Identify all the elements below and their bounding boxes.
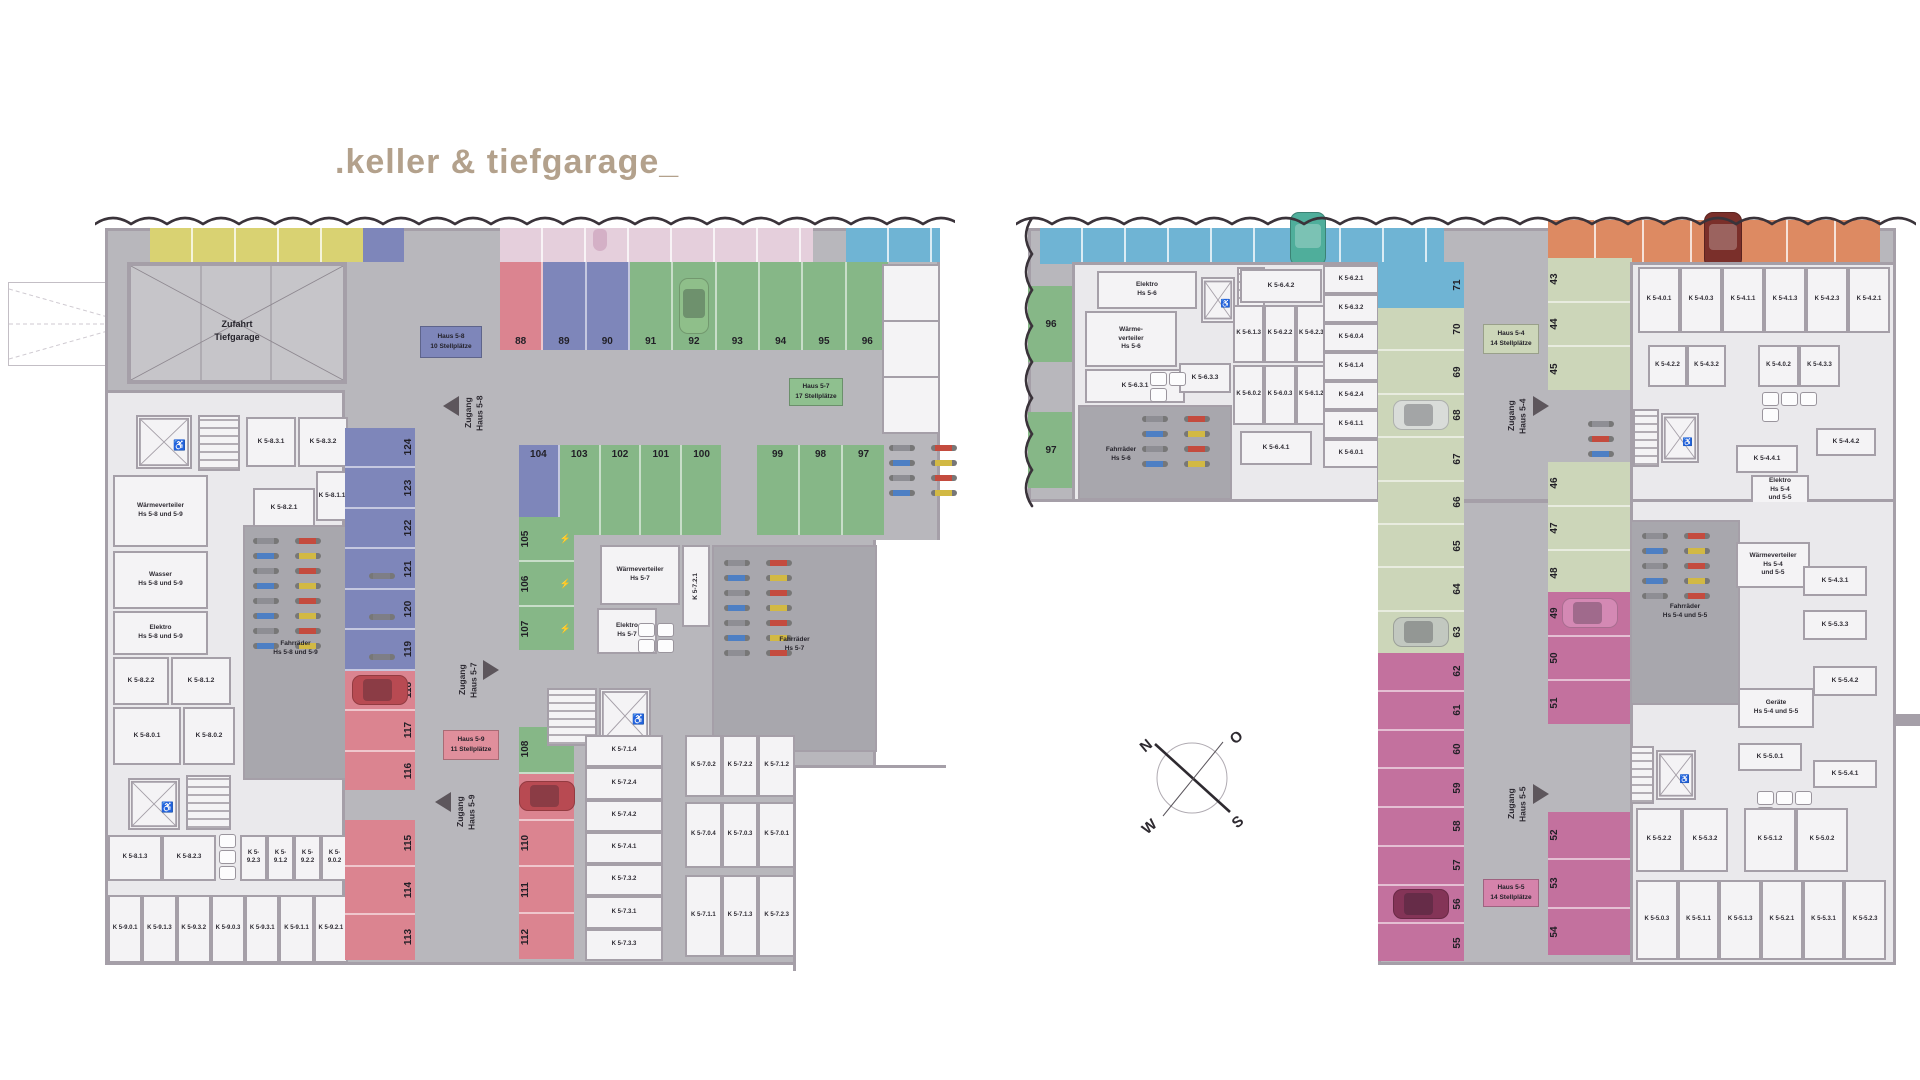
parking-space-number: 100	[693, 449, 710, 460]
car-icon	[1393, 400, 1449, 430]
room-label: K 5-7.1.3	[728, 912, 753, 920]
parking-space-124: 124	[345, 428, 415, 468]
room-label: K 5-7.1.2	[764, 762, 789, 770]
zufahrt-ramp: Zufahrt Tiefgarage	[127, 262, 347, 384]
cellar-room: K 5-9.3.1	[245, 895, 279, 963]
cellar-room: K 5-5.0.1	[1738, 743, 1802, 771]
bicycle-icon	[1642, 578, 1668, 584]
cart-icon	[657, 623, 674, 637]
room-label: K 5-5.3.1	[1811, 916, 1836, 924]
bike-icons	[1640, 530, 1712, 602]
bicycle-icon	[1684, 578, 1710, 584]
room-label: K 5-6.0.2	[1236, 391, 1261, 399]
parking-space-number: 94	[775, 336, 786, 347]
plan-notch	[873, 540, 946, 768]
bicycle-icon	[369, 654, 395, 660]
bicycle-icon	[931, 475, 957, 481]
compass-west: W	[1139, 815, 1161, 833]
parking-space-115: 115	[345, 820, 415, 867]
room-label: K 5-9.1.1	[284, 925, 309, 933]
cellar-room: K 5-5.1.3	[1719, 880, 1761, 960]
room-label: K 5-9.2.1	[318, 925, 343, 933]
bicycle-icon	[253, 553, 279, 559]
cart-icon	[1762, 392, 1779, 406]
parking-space-90: 90	[587, 262, 630, 350]
parking-space-number: 53	[1549, 878, 1560, 889]
car-icon	[1562, 598, 1618, 628]
zugang-haus-5-7-arrow	[483, 660, 499, 680]
cellar-room-row: K 5-6.0.2K 5-6.0.3K 5-6.1.2	[1233, 365, 1327, 425]
cellar-room: K 5-4.1.3	[1764, 267, 1806, 333]
svg-text:♿: ♿	[1680, 773, 1690, 783]
cellar-room: K 5-4.2.3	[1806, 267, 1848, 333]
cellar-room: K 5-5.2.2	[1636, 808, 1682, 872]
bicycle-icon	[724, 605, 750, 611]
room-label: K 5-6.0.1	[1339, 450, 1364, 458]
cellar-room: K 5-7.3.3	[585, 929, 663, 961]
bike-room-label: Fahrräder Hs 5-8 und 5-9	[245, 639, 346, 657]
room-label: K 5-5.2.2	[1647, 836, 1672, 844]
bicycle-icon	[931, 490, 957, 496]
bicycle-icon	[253, 628, 279, 634]
parking-space-number: 116	[403, 763, 414, 779]
cellar-room: K 5-7.0.4	[685, 802, 722, 868]
parking-space-number: 60	[1452, 743, 1463, 754]
cellar-room: K 5-8.0.1	[113, 707, 181, 765]
cellar-room: K 5-9.0.1	[108, 895, 142, 963]
parking-space-61: 61	[1378, 692, 1464, 731]
cart-icon	[638, 623, 655, 637]
cellar-room: K 5-6.3.2	[1323, 294, 1379, 323]
cart-icon	[1169, 372, 1186, 386]
cellar-room: K 5-6.1.1	[1323, 410, 1379, 439]
parking-space-number: 67	[1452, 453, 1463, 464]
car-icon	[679, 278, 709, 334]
parking-column-62-55: 6261605958575655	[1378, 653, 1464, 961]
parking-space-59: 59	[1378, 769, 1464, 808]
parking-space-49: 49	[1548, 592, 1632, 637]
elevator-icon: ♿	[128, 778, 180, 830]
bicycle-icon	[1684, 533, 1710, 539]
bike-room-haus-5-6: Fahrräder Hs 5-6	[1078, 405, 1232, 500]
cellar-room: K 5-5.4.2	[1813, 666, 1877, 696]
cellar-room-row: K 5-4.0.2K 5-4.3.3	[1758, 345, 1840, 387]
torn-edge-top	[1016, 206, 1916, 236]
parking-space-number: 54	[1549, 926, 1560, 937]
room-label: K 5-6.3.2	[1339, 305, 1364, 313]
parking-space-98: 98	[800, 445, 843, 535]
cellar-room: K 5-6.1.4	[1323, 352, 1379, 381]
bicycle-icon	[1142, 416, 1168, 422]
room-label: K 5-4.1.1	[1731, 296, 1756, 304]
parking-space-109: 109	[519, 774, 574, 821]
cellar-room: K 5-4.3.1	[1803, 566, 1867, 596]
parking-space-number: 47	[1549, 522, 1560, 533]
room-label: K 5-4.3.3	[1807, 362, 1832, 370]
bicycle-icon	[253, 538, 279, 544]
compass-east: O	[1227, 728, 1247, 748]
cellar-room-row: K 5-9.0.1K 5-9.1.3K 5-9.3.2K 5-9.0.3K 5-…	[108, 895, 348, 963]
room-label: K 5-9.0.3	[216, 925, 241, 933]
cellar-room: K 5-7.1.4	[585, 735, 663, 767]
bicycle-icon	[724, 560, 750, 566]
room-label: K 5-5.1.3	[1728, 916, 1753, 924]
room-label: K 5-7.4.1	[612, 844, 637, 852]
cart-icon	[1757, 791, 1774, 805]
bicycle-icon	[1684, 593, 1710, 599]
parking-space-118: 118	[345, 671, 415, 711]
cellar-room: K 5-7.0.3	[722, 802, 759, 868]
room-label: K 5-4.3.2	[1694, 362, 1719, 370]
cellar-room: K 5-5.0.3	[1636, 880, 1678, 960]
cellar-room: K 5-5.0.2	[1796, 808, 1848, 872]
parking-column-43-45: 434445	[1548, 258, 1632, 390]
cellar-room: K 5-8.1.2	[171, 657, 231, 705]
parking-space-number: 114	[403, 882, 414, 898]
bicycle-icon	[889, 445, 915, 451]
room-label: K 5-6.2.3	[1299, 330, 1324, 338]
room-label: K 5-7.1.4	[612, 747, 637, 755]
cellar-room: K 5-8.2.3	[162, 835, 216, 881]
parking-space-number: 124	[403, 439, 414, 456]
elevator-icon: ♿	[1656, 750, 1696, 800]
cellar-room: K 5-8.0.2	[183, 707, 235, 765]
parking-space-number: 113	[403, 929, 414, 945]
parking-space-123: 123	[345, 468, 415, 508]
room-label: K 5-9.1.3	[147, 925, 172, 933]
cellar-room: K 5-4.2.2	[1648, 345, 1687, 387]
parking-space-111: 111	[519, 867, 574, 914]
bike-icons	[251, 535, 323, 652]
elevator-icon: ♿	[136, 415, 192, 469]
cellar-room: K 5-5.3.1	[1803, 880, 1845, 960]
ev-charging-icon: ⚡	[560, 578, 571, 589]
bicycle-icon	[295, 613, 321, 619]
parking-space-95: 95	[803, 262, 846, 350]
cellar-room: K 5-4.1.1	[1722, 267, 1764, 333]
parking-space-number: 88	[515, 336, 526, 347]
parking-space-number: 70	[1452, 323, 1463, 334]
technical-room: Wärmeverteiler Hs 5-4 und 5-5	[1736, 542, 1810, 588]
cellar-room: K 5-6.0.3	[1264, 365, 1295, 425]
parking-space-97: 97	[843, 445, 884, 535]
cellar-room: K 5-6.2.1	[1323, 265, 1379, 294]
cellar-room-row: K 5-7.0.2K 5-7.2.2K 5-7.1.2	[685, 735, 795, 797]
parking-column-115-113: 115114113	[345, 820, 415, 960]
cellar-room: K 5-9.2.1	[314, 895, 348, 963]
parking-space-number: 63	[1452, 627, 1463, 638]
bicycle-icon	[1642, 563, 1668, 569]
cellar-room: K 5-9.0.2	[321, 835, 348, 881]
room-label: K 5-4.0.3	[1689, 296, 1714, 304]
room-label: K 5-6.1.3	[1236, 330, 1261, 338]
cellar-room-column: K 5-6.2.1K 5-6.3.2K 5-6.0.4K 5-6.1.4K 5-…	[1323, 265, 1379, 468]
cellar-room: K 5-8.2.2	[113, 657, 169, 705]
parking-space-94: 94	[760, 262, 803, 350]
parking-space-88: 88	[500, 262, 543, 350]
parking-space-106: 106⚡	[519, 562, 574, 607]
cellar-room-row: K 5-4.2.2K 5-4.3.2	[1648, 345, 1726, 387]
bicycle-icon	[889, 460, 915, 466]
cellar-room: K 5-4.4.2	[1816, 428, 1876, 456]
parking-space-number: 69	[1452, 367, 1463, 378]
parking-space-68: 68	[1378, 395, 1464, 438]
cellar-room: K 5-6.0.1	[1323, 439, 1379, 468]
room-label: K 5-5.0.3	[1644, 916, 1669, 924]
parking-space-number: 93	[732, 336, 743, 347]
cellar-room: K 5-5.2.3	[1844, 880, 1886, 960]
bicycle-icon	[1642, 593, 1668, 599]
cellar-room: K 5-7.0.1	[758, 802, 795, 868]
room-label: K 5-6.1.4	[1339, 363, 1364, 371]
technical-room: Geräte Hs 5-4 und 5-5	[1738, 688, 1814, 728]
torn-edge-left	[1014, 218, 1044, 518]
room-label: K 5-4.2.3	[1815, 296, 1840, 304]
compass-north: N	[1137, 736, 1156, 756]
zugang-haus-5-9-arrow	[435, 792, 451, 812]
parking-column-124-116: 124123122121120119118117116	[345, 428, 415, 790]
cellar-room: K 5-7.3.2	[585, 864, 663, 896]
parking-space-number: 106	[520, 575, 531, 592]
parking-space-64: 64	[1378, 568, 1464, 611]
parking-space-number: 46	[1549, 478, 1560, 489]
cart-icon	[1781, 392, 1798, 406]
bicycle-icon	[295, 628, 321, 634]
bike-room-haus-5-7: Fahrräder Hs 5-7	[712, 545, 877, 752]
parking-space-51: 51	[1548, 681, 1632, 724]
cellar-room-row: K 5-7.0.4K 5-7.0.3K 5-7.0.1	[685, 802, 795, 868]
svg-text:♿: ♿	[173, 438, 186, 451]
cellar-room-row: K 5-8.1.3K 5-8.2.3	[108, 835, 216, 881]
room-label: K 5-6.2.1	[1339, 276, 1364, 284]
cellar-room: K 5-9.3.2	[177, 895, 211, 963]
cellar-room: K 5-5.1.2	[1744, 808, 1796, 872]
compass-south: S	[1229, 813, 1248, 832]
plan-notch	[793, 765, 946, 971]
cellar-room: K 5-4.0.1	[1638, 267, 1680, 333]
cellar-room: K 5-7.1.3	[722, 875, 759, 957]
room-label: K 5-9.0.1	[113, 925, 138, 933]
room-label: K 5-9.3.2	[181, 925, 206, 933]
bicycle-icon	[1184, 416, 1210, 422]
parking-column-108-112: 108109110111112	[519, 727, 574, 959]
parking-space-56: 56	[1378, 886, 1464, 925]
parking-row-99-97: 999897	[757, 445, 884, 535]
cellar-room-row: K 5-7.1.1K 5-7.1.3K 5-7.2.3	[685, 875, 795, 957]
cellar-room-row: K 5-5.0.3K 5-5.1.1K 5-5.1.3K 5-5.2.1K 5-…	[1636, 880, 1886, 960]
parking-space-number: 44	[1549, 318, 1560, 329]
cellar-room: K 5-4.4.1	[1736, 445, 1798, 473]
room-label: K 5-5.0.2	[1810, 836, 1835, 844]
zugang-haus-5-4-label: Zugang Haus 5-4	[1506, 384, 1529, 448]
room-label: K 5-5.1.1	[1686, 916, 1711, 924]
bicycle-icon	[724, 620, 750, 626]
parking-column-49-51: 495051	[1548, 592, 1632, 724]
cart-icon	[219, 850, 236, 864]
bicycle-icon	[295, 598, 321, 604]
cart-icons	[1149, 371, 1203, 403]
svg-text:♿: ♿	[632, 712, 645, 725]
cellar-room: K 5-5.4.1	[1813, 760, 1877, 788]
technical-room: Wärmeverteiler Hs 5-8 und 5-9	[113, 475, 208, 547]
parking-space-number: 108	[520, 741, 531, 758]
parking-space-number: 92	[688, 336, 699, 347]
parking-space-number: 55	[1452, 937, 1463, 948]
parking-space-number: 66	[1452, 497, 1463, 508]
parking-space-52: 52	[1548, 812, 1632, 860]
parking-space-number: 50	[1549, 652, 1560, 663]
cellar-room: K 5-9.1.2	[267, 835, 294, 881]
parking-space-number: 115	[403, 835, 414, 851]
parking-space-101: 101	[641, 445, 682, 535]
bike-room-label: Fahrräder Hs 5-6	[1046, 445, 1196, 463]
parking-space-number: 121	[403, 560, 414, 577]
haus-5-8-stellplaetze-label: Haus 5-8 10 Stellplätze	[420, 326, 482, 358]
room-label: K 5-5.3.2	[1693, 836, 1718, 844]
bicycle-icon	[253, 583, 279, 589]
room-label: K 5-7.3.2	[612, 876, 637, 884]
bicycle-icon	[766, 575, 792, 581]
bicycle-icon	[724, 575, 750, 581]
parking-space-119: 119	[345, 630, 415, 670]
parking-space-57: 57	[1378, 847, 1464, 886]
parking-space-44: 44	[1548, 303, 1632, 348]
parking-space-number: 112	[520, 929, 531, 945]
cellar-room: K 5-5.2.1	[1761, 880, 1803, 960]
parking-space-number: 98	[815, 449, 826, 460]
cellar-room: K 5-9.1.3	[142, 895, 176, 963]
room-label: K 5-4.0.1	[1647, 296, 1672, 304]
zugang-haus-5-8-arrow	[443, 396, 459, 416]
parking-space-71: 71	[1378, 262, 1464, 308]
parking-space-69: 69	[1378, 351, 1464, 394]
stairs-icon	[186, 775, 231, 830]
room-label: K 5-9.0.2	[323, 850, 346, 866]
plan-left-haus-5-7-5-8-5-9: Zufahrt Tiefgarage 888990919293949596 Ha…	[105, 220, 945, 970]
cellar-room: K 5-8.2.1	[253, 488, 315, 528]
bicycle-icon	[1142, 431, 1168, 437]
room-label: K 5-4.0.2	[1766, 362, 1791, 370]
cellar-room: K 5-8.3.1	[246, 417, 296, 467]
cellar-room: K 5-5.3.2	[1682, 808, 1728, 872]
parking-space-113: 113	[345, 915, 415, 960]
parking-space-number: 49	[1549, 608, 1560, 619]
cellar-room: K 5-7.2.1	[682, 545, 710, 627]
parking-space-number: 101	[652, 449, 669, 460]
parking-space-number: 64	[1452, 583, 1463, 594]
cellar-room: K 5-7.4.2	[585, 800, 663, 832]
parking-space-number: 111	[520, 882, 531, 898]
parking-space-number: 57	[1452, 860, 1463, 871]
cellar-room: K 5-6.4.1	[1240, 431, 1312, 465]
cellar-room: K 5-5.1.1	[1678, 880, 1720, 960]
cart-icon	[219, 866, 236, 880]
cellar-room: K 5-7.3.1	[585, 896, 663, 928]
compass-rose: N O S W	[1135, 728, 1250, 833]
cellar-room-row: K 5-5.1.2K 5-5.0.2	[1744, 808, 1848, 872]
bicycle-icon	[1684, 563, 1710, 569]
parking-space-92: 92	[673, 262, 716, 350]
cellar-room: K 5-9.1.1	[279, 895, 313, 963]
parking-space-number: 117	[403, 722, 414, 738]
bike-room-haus-5-8-5-9: Fahrräder Hs 5-8 und 5-9	[243, 525, 348, 780]
bicycle-icon	[889, 490, 915, 496]
parking-space-number: 51	[1549, 697, 1560, 708]
cart-icon	[219, 834, 236, 848]
parking-space-100: 100	[682, 445, 721, 535]
cellar-block-west: ♿ K 5-8.3.1 K 5-8.3.2 Wärmeverteiler Hs …	[105, 390, 345, 965]
parking-space-number: 99	[772, 449, 783, 460]
room-label: K 5-5.2.1	[1770, 916, 1795, 924]
parking-space-number: 71	[1452, 279, 1463, 290]
zufahrt-label: Zufahrt Tiefgarage	[131, 318, 343, 343]
ev-charging-icon: ⚡	[560, 623, 571, 634]
car-icon	[352, 675, 408, 705]
parking-space-122: 122	[345, 509, 415, 549]
elevator-icon: ♿	[1201, 277, 1235, 323]
parking-space-number: 102	[612, 449, 629, 460]
cellar-block-haus-5-4: K 5-4.0.1K 5-4.0.3K 5-4.1.1K 5-4.1.3K 5-…	[1630, 262, 1896, 502]
parking-space-102: 102	[601, 445, 642, 535]
parking-space-number: 62	[1452, 666, 1463, 677]
technical-room: Wärmeverteiler Hs 5-7	[600, 545, 680, 605]
bike-icons	[887, 442, 959, 499]
bicycle-icon	[766, 605, 792, 611]
cart-icons	[218, 833, 238, 881]
cellar-room: K 5-6.2.2	[1264, 305, 1295, 363]
technical-room: Elektro Hs 5-4 und 5-5	[1751, 475, 1809, 503]
bicycle-icon	[766, 560, 792, 566]
cellar-room: K 5-8.3.2	[298, 417, 348, 467]
room-label: K 5-7.3.1	[612, 909, 637, 917]
parking-space-number: 56	[1452, 898, 1463, 909]
cellar-room: K 5-4.0.2	[1758, 345, 1799, 387]
parking-space-121: 121	[345, 549, 415, 589]
parking-space-114: 114	[345, 867, 415, 914]
haus-5-7-stellplaetze-label: Haus 5-7 17 Stellplätze	[789, 378, 843, 406]
parking-space-120: 120	[345, 590, 415, 630]
cellar-room: K 5-6.1.3	[1233, 305, 1264, 363]
ev-charging-icon: ⚡	[560, 533, 571, 544]
cart-icons	[637, 622, 677, 654]
parking-space-number: 120	[403, 601, 414, 618]
parking-space-number: 105	[520, 530, 531, 547]
room-label: K 5-6.2.2	[1268, 330, 1293, 338]
bike-room-haus-5-4-5-5: Fahrräder Hs 5-4 und 5-5	[1630, 520, 1740, 705]
parking-space-number: 90	[602, 336, 613, 347]
haus-5-5-stellplaetze-label: Haus 5-5 14 Stellplätze	[1483, 879, 1539, 907]
room-label: K 5-6.0.3	[1268, 391, 1293, 399]
parking-space-48: 48	[1548, 551, 1632, 594]
parking-space-number: 45	[1549, 363, 1560, 374]
cart-icon	[638, 639, 655, 653]
room-label: K 5-8.1.3	[123, 854, 148, 862]
bicycle-icon	[1642, 548, 1668, 554]
zugang-haus-5-9-label: Zugang Haus 5-9	[455, 780, 478, 844]
bicycle-icon	[295, 583, 321, 589]
cellar-room: K 5-4.2.1	[1848, 267, 1890, 333]
cart-icon	[1795, 791, 1812, 805]
plan-right-haus-5-4-5-5-5-6: 96 97 Elektro Hs 5-6 ♿ Wärme- verteiler …	[1028, 220, 1920, 970]
room-label: K 5-6.1.2	[1299, 391, 1324, 399]
parking-space-53: 53	[1548, 860, 1632, 908]
parking-space-number: 95	[818, 336, 829, 347]
parking-space-number: 61	[1452, 705, 1463, 716]
cellar-room: K 5-6.0.4	[1323, 323, 1379, 352]
cellar-room: K 5-4.3.3	[1799, 345, 1840, 387]
cellar-room-row: K 5-5.2.2K 5-5.3.2	[1636, 808, 1728, 872]
parking-space-62: 62	[1378, 653, 1464, 692]
